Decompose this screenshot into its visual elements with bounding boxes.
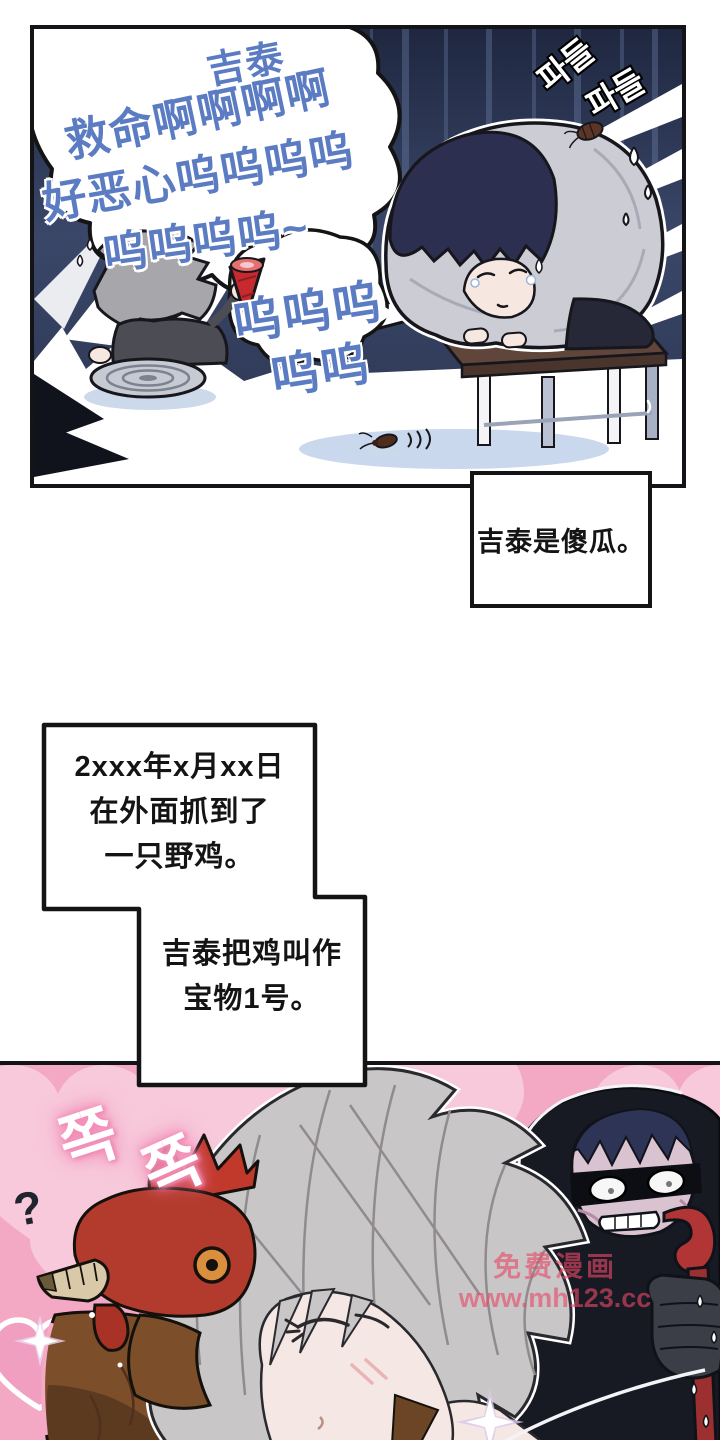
hand: [463, 328, 488, 344]
caption-box-name: 吉泰把鸡叫作 宝物1号。: [141, 932, 363, 1022]
panel-dark-scene: 吉泰 救命啊啊啊啊 好恶心呜呜呜呜 呜呜呜呜~ 呜呜呜 呜呜 파들 파들: [30, 25, 686, 488]
panel-pink-scene: 쪽 쪽 ? 免费漫画 www.mh123.cc: [0, 1061, 720, 1440]
wattle: [94, 1305, 128, 1350]
caption-line: 2xxx年x月xx日: [46, 745, 313, 790]
comic-page: 吉泰 救命啊啊啊啊 好恶心呜呜呜呜 呜呜呜呜~ 呜呜呜 呜呜 파들 파들: [0, 0, 720, 1440]
caption-line: 一只野鸡。: [46, 835, 313, 880]
plate: [91, 359, 205, 397]
hand: [89, 347, 111, 363]
watermark: 免费漫画 www.mh123.cc: [425, 1251, 685, 1313]
caption-line: 宝物1号。: [141, 977, 363, 1022]
hand: [502, 332, 527, 348]
sweat-drop: [536, 259, 542, 273]
watermark-line: www.mh123.cc: [425, 1283, 685, 1313]
caption-box-date: 2xxx年x月xx日 在外面抓到了 一只野鸡。: [46, 745, 313, 880]
tear-drop: [527, 276, 536, 285]
watermark-line: 免费漫画: [425, 1251, 685, 1283]
caption-box-fool: 吉泰是傻瓜。: [470, 471, 652, 608]
caption-text: 吉泰是傻瓜。: [477, 520, 645, 559]
caption-line: 在外面抓到了: [46, 790, 313, 835]
caption-line: 吉泰把鸡叫作: [141, 932, 363, 977]
tear-drop: [471, 279, 479, 287]
